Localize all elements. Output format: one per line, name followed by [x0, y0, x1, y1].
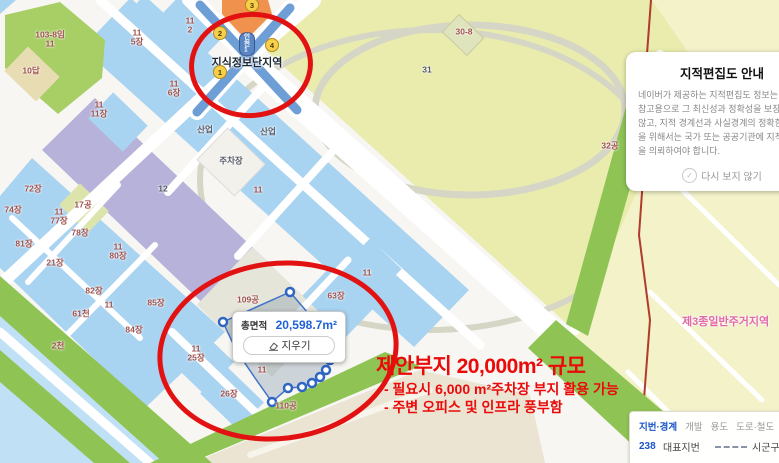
check-circle-icon: ✓ [682, 168, 697, 183]
notice-body: 네이버가 제공하는 지적편집도 정보는 단순 참고용으로 그 최신성과 정확성을… [638, 89, 779, 159]
legend-number-238: 238 [639, 441, 663, 452]
legend-tabs: 지번·경계개발용도도로·철도국토계획 [639, 419, 779, 433]
area-label: 총면적 [241, 318, 267, 332]
proposal-title: 제안부지 20,000m² 규모 [376, 350, 619, 380]
clear-measure-button[interactable]: 지우기 [243, 336, 335, 355]
city-boundary-label: 시군구경계 [752, 439, 779, 454]
notice-title: 지적편집도 안내 [638, 63, 779, 82]
legend-tab-1[interactable]: 지번·경계 [639, 419, 677, 433]
proposal-bullet-1: - 필요시 6,000 m²주차장 부지 활용 가능 [384, 380, 619, 398]
city-boundary-line-sample [715, 446, 747, 448]
map-canvas[interactable]: 103-8임 1110답11 5장11 211 6장11 11장12산업산업주차… [0, 0, 779, 463]
clear-measure-label: 지우기 [282, 338, 311, 353]
cadastral-notice-panel: 지적편집도 안내 네이버가 제공하는 지적편집도 정보는 단순 참고용으로 그 … [626, 52, 779, 191]
legend-label-representative-parcel: 대표지번 [663, 439, 715, 454]
proposal-annotation: 제안부지 20,000m² 규모 - 필요시 6,000 m²주차장 부지 활용… [376, 350, 619, 416]
dismiss-notice-button[interactable]: ✓ 다시 보지 않기 [638, 168, 779, 183]
area-value: 20,598.7m² [276, 318, 337, 332]
legend-tab-3[interactable]: 용도 [711, 419, 728, 433]
legend-panel: 지번·경계개발용도도로·철도국토계획 238 대표지번 시군구경계 239 지번… [629, 411, 779, 463]
measure-tooltip: 총면적 20,598.7m² 지우기 [232, 311, 346, 363]
legend-tab-2[interactable]: 개발 [685, 419, 702, 433]
dismiss-label: 다시 보지 않기 [701, 168, 762, 183]
zone-label: 제3종일반주거지역 [682, 313, 769, 329]
legend-tab-4[interactable]: 도로·철도 [736, 419, 774, 433]
proposal-bullet-2: - 주변 오피스 및 인프라 풍부함 [384, 398, 619, 416]
legend-row-parcel-number: 238 대표지번 시군구경계 [639, 439, 779, 454]
eraser-icon [268, 341, 279, 351]
